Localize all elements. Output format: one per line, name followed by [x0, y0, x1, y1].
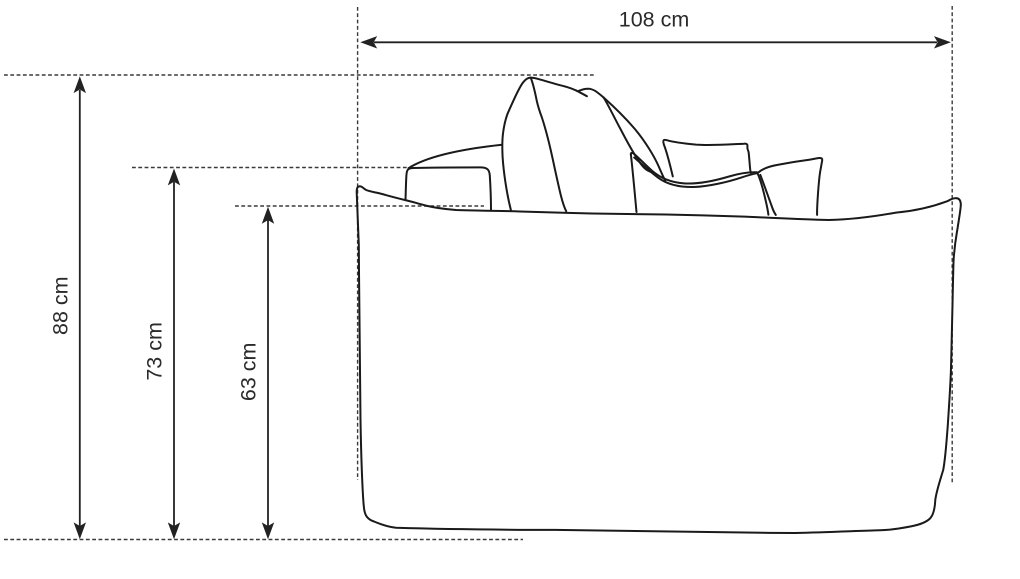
svg-text:88 cm: 88 cm [49, 276, 73, 335]
svg-text:63 cm: 63 cm [237, 343, 261, 402]
svg-text:73 cm: 73 cm [143, 322, 167, 381]
svg-text:108 cm: 108 cm [619, 8, 690, 32]
